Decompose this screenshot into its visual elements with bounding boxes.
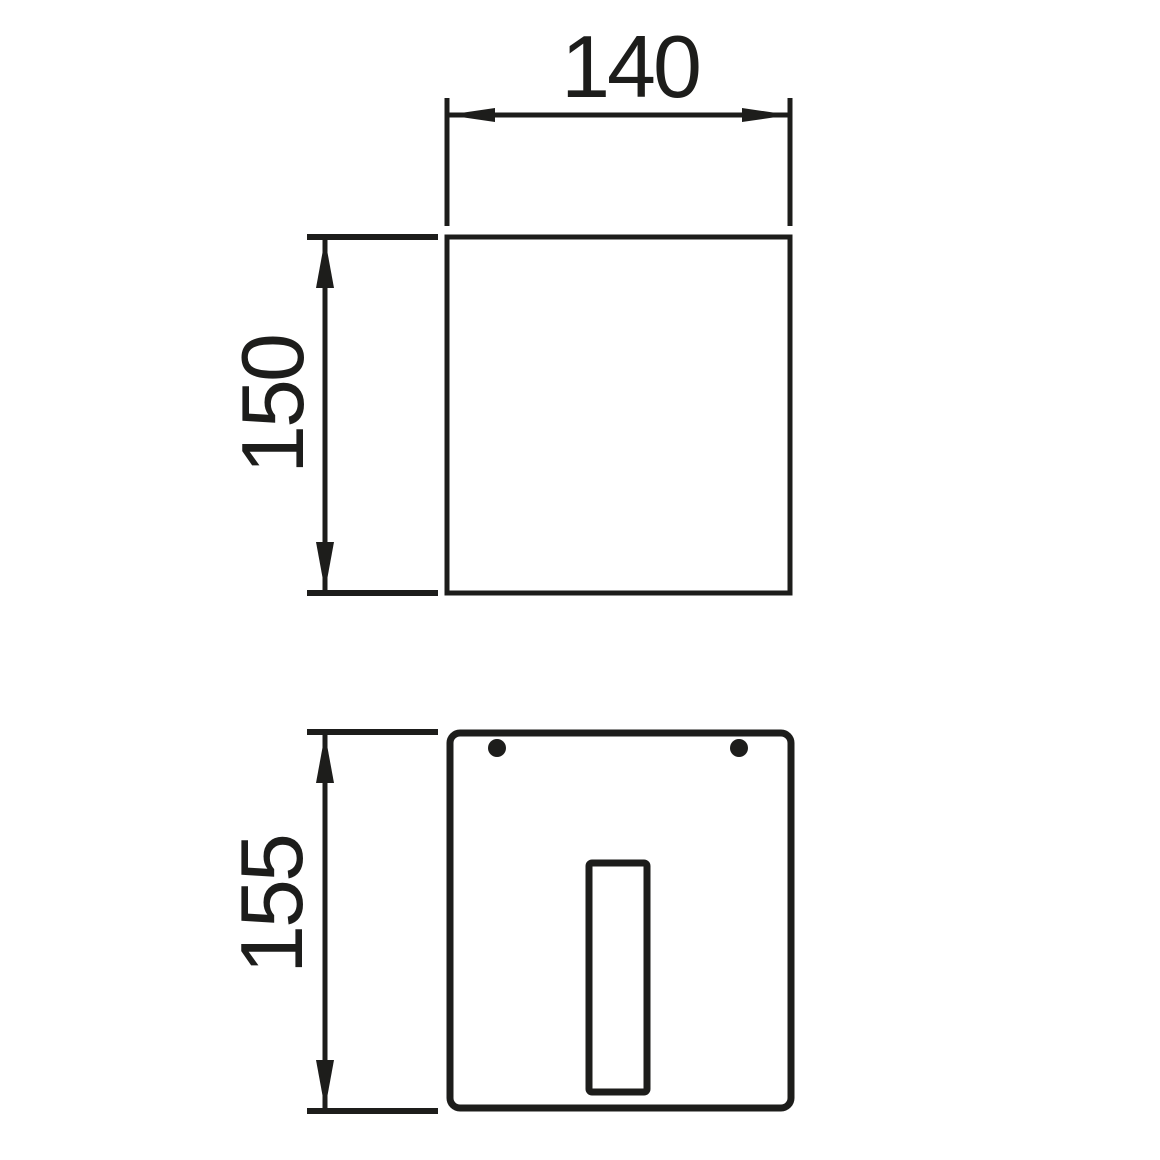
rear-height-dimension: 155: [222, 732, 438, 1111]
drawing-page: 140 150: [0, 0, 1160, 1160]
arrowhead-down: [316, 1060, 334, 1109]
arrowhead-left: [447, 108, 495, 122]
rear-view: 155: [222, 732, 791, 1111]
arrowhead-up: [316, 239, 334, 288]
sensor-window-slot: [589, 863, 647, 1092]
arrowhead-up: [316, 734, 334, 783]
mounting-hole-left: [488, 739, 506, 757]
front-height-dimension: 150: [223, 237, 438, 593]
rear-height-dimension-label: 155: [222, 836, 321, 974]
height-dimension-label: 150: [223, 336, 322, 474]
front-width-dimension: 140: [447, 17, 790, 226]
arrowhead-right: [742, 108, 790, 122]
arrowhead-down: [316, 542, 334, 591]
front-view: 140 150: [223, 17, 790, 593]
mounting-hole-right: [730, 739, 748, 757]
front-view-outline: [447, 237, 790, 593]
technical-drawing-canvas: 140 150: [0, 0, 1160, 1160]
width-dimension-label: 140: [561, 17, 699, 116]
drawing-linework: 140 150: [222, 17, 791, 1111]
